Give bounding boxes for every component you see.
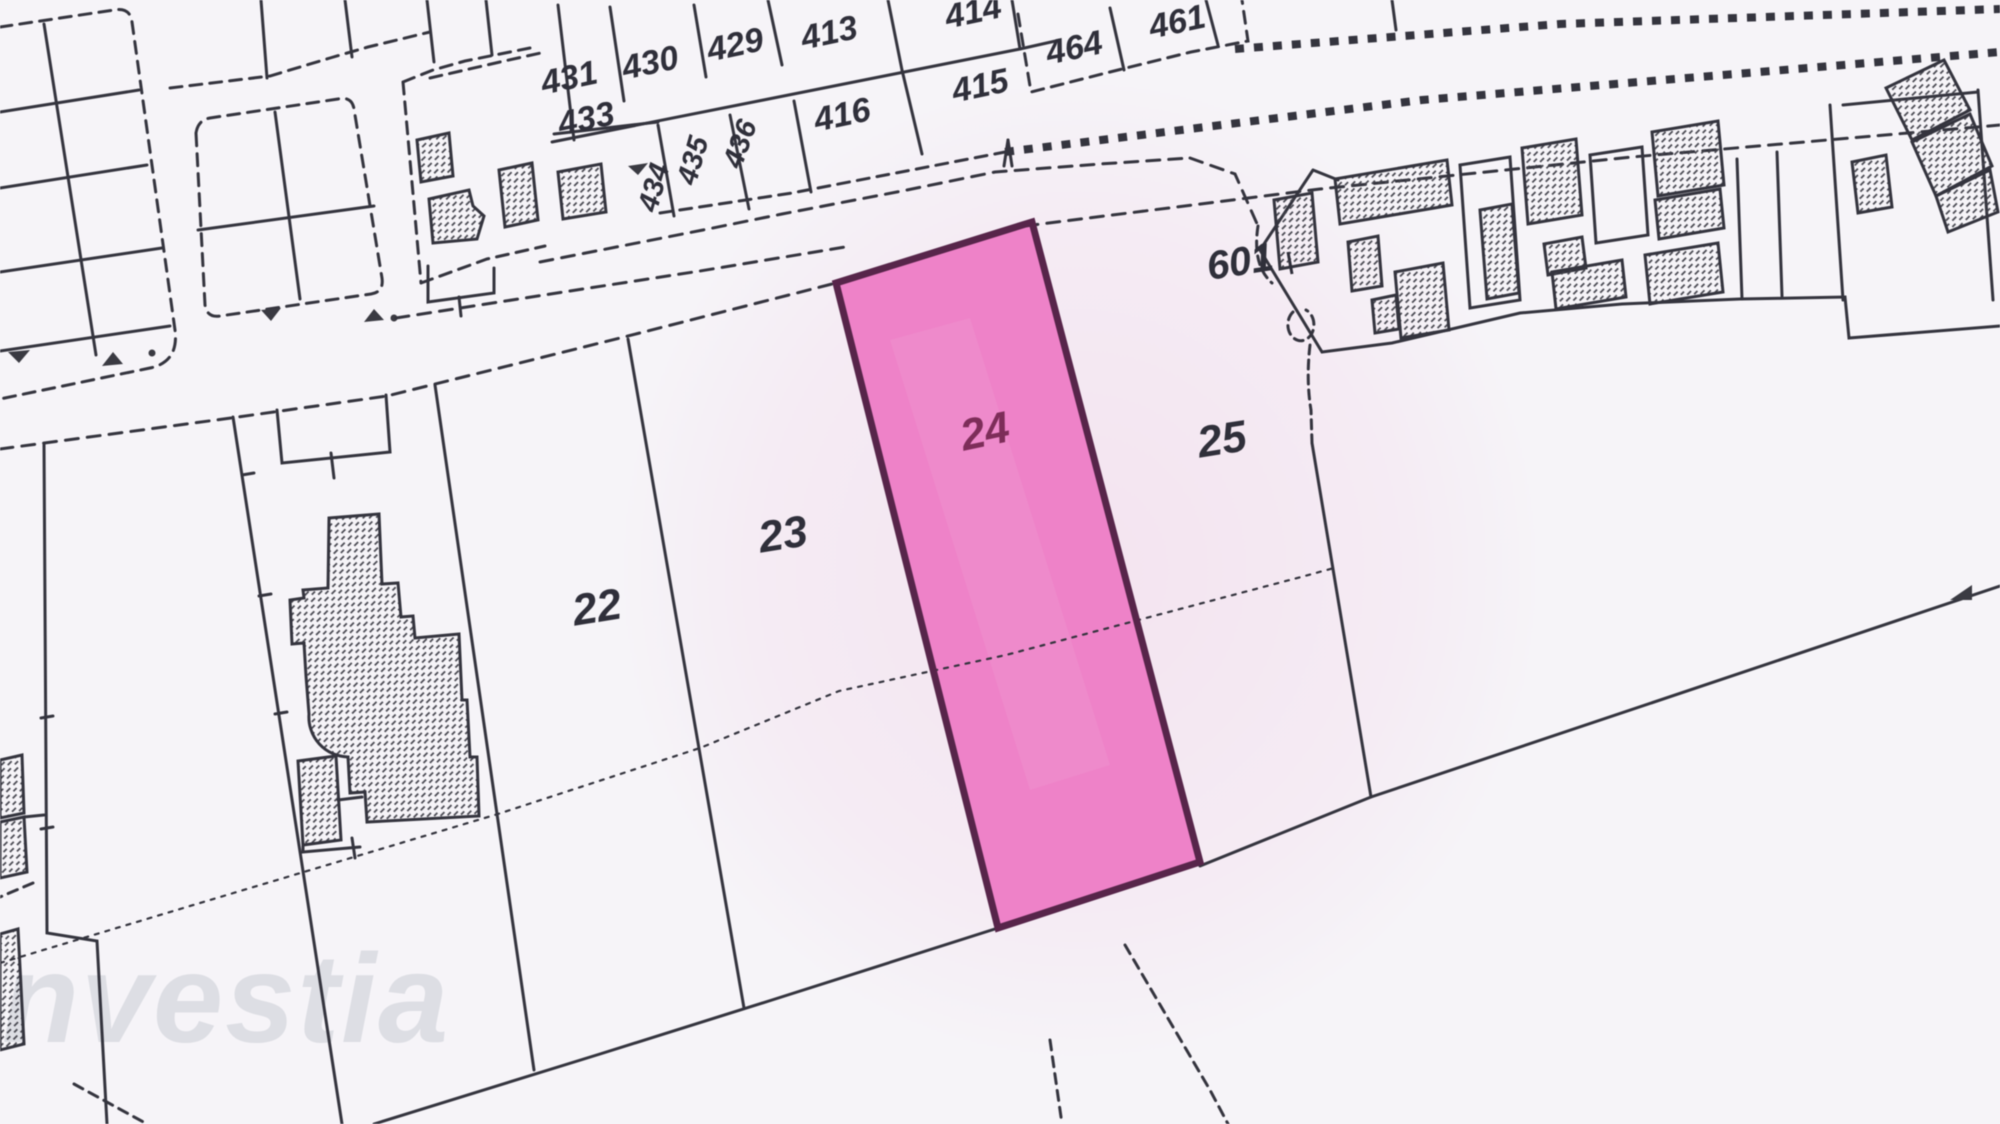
- svg-text:25: 25: [1193, 411, 1251, 467]
- svg-text:investia: investia: [0, 928, 450, 1069]
- svg-text:22: 22: [568, 579, 626, 635]
- svg-text:24: 24: [955, 402, 1014, 460]
- svg-text:23: 23: [754, 506, 811, 562]
